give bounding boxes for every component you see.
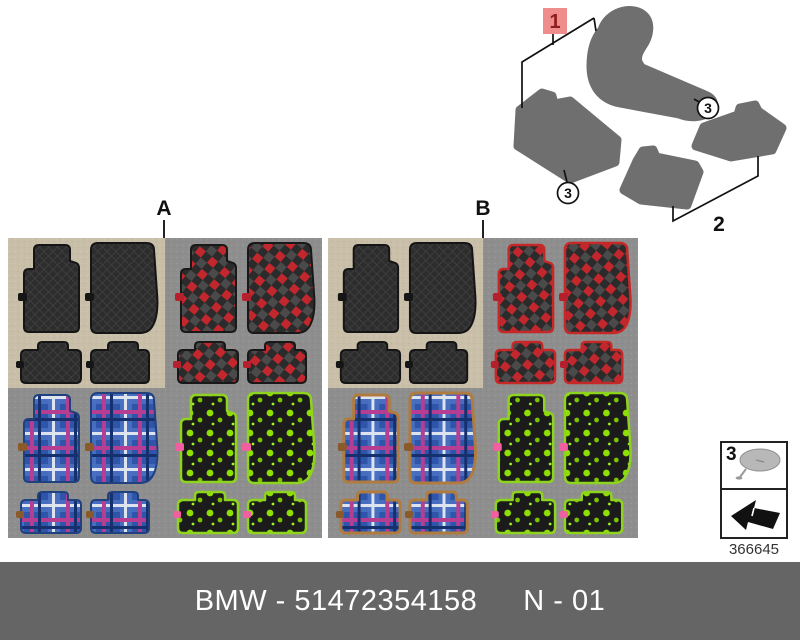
parts-catalog-page: 1 3 3 2 A B — [0, 0, 800, 640]
mat-set-line-diagram: 1 3 3 2 — [490, 0, 800, 235]
footer-part-number: BMW - 51472354158 — [195, 585, 478, 618]
callout-3-right-label[interactable]: 3 — [704, 100, 712, 116]
legend-item-number: 3 — [726, 444, 737, 466]
callout-3-left-label[interactable]: 3 — [564, 185, 572, 201]
diagram-front-right-mat — [591, 11, 714, 117]
figure-number: 366645 — [700, 541, 800, 558]
diagram-front-left-mat — [518, 93, 617, 179]
footer-page-number: N - 01 — [523, 585, 605, 618]
variant-a-photo-panel — [8, 238, 322, 538]
variant-b-label: B — [463, 197, 503, 221]
callout-3-left[interactable]: 3 — [558, 183, 579, 204]
bracket-1-tick — [594, 18, 596, 31]
variant-b-tick — [482, 220, 484, 238]
variant-b-photo-panel — [328, 238, 638, 538]
variant-a-tick — [163, 220, 165, 238]
footer-bar: BMW - 51472354158 N - 01 — [0, 562, 800, 640]
direction-arrow-icon — [724, 494, 788, 539]
diagram-rear-left-mat — [624, 150, 699, 205]
legend-fastener-cell: 3 — [722, 443, 786, 490]
callout-2-label[interactable]: 2 — [713, 213, 725, 235]
callout-1-label[interactable]: 1 — [549, 11, 560, 33]
callout-1[interactable]: 1 — [543, 8, 567, 34]
callout-3-right[interactable]: 3 — [698, 98, 719, 119]
variant-a-label: A — [144, 197, 184, 221]
legend-direction-cell — [722, 494, 786, 543]
legend-box[interactable]: 3 — [720, 441, 788, 539]
